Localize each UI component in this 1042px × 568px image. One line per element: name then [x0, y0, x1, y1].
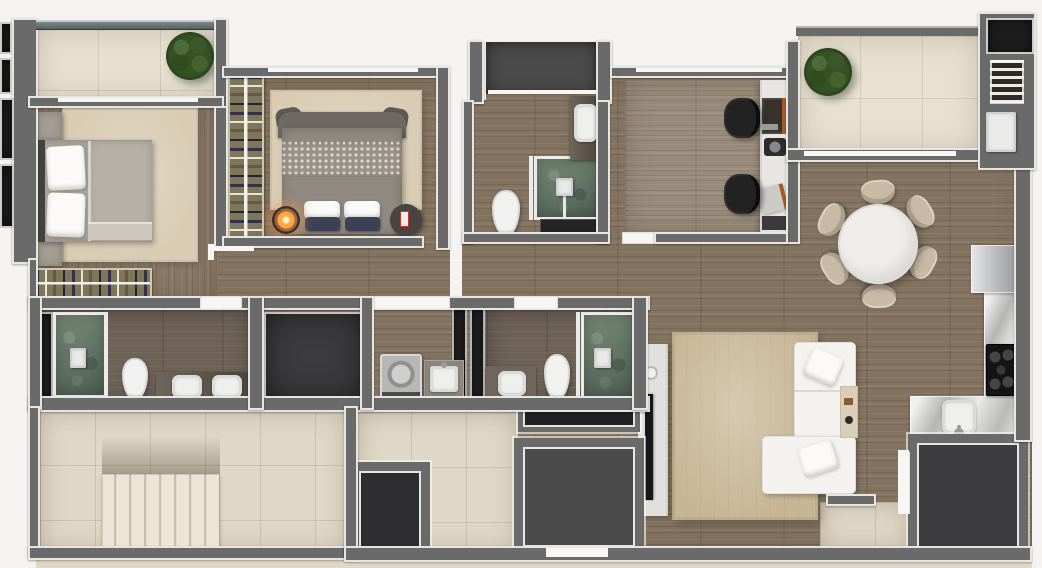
elevator-sill: [546, 548, 608, 557]
office-keyboard: [762, 124, 778, 130]
duct-shaft-b: [470, 306, 485, 402]
office-chair-2: [724, 174, 760, 214]
cooktop: [986, 344, 1016, 396]
master-headboard: [38, 140, 45, 242]
dining-chair: [862, 283, 897, 308]
window-trim-office: [636, 68, 782, 72]
bath1-shower-glass: [529, 156, 533, 220]
exterior-top-2: [598, 0, 798, 66]
exterior-top-3: [796, 0, 996, 26]
slider-trim-balc2: [804, 151, 956, 156]
wall-bed2-right: [436, 66, 450, 250]
railing-balcony-2: [796, 26, 978, 36]
plant-balcony-master: [166, 32, 214, 80]
wall-mid-bottom: [28, 396, 650, 412]
left-panel-2: [0, 58, 12, 94]
shaft-void-top: [486, 42, 598, 94]
plant-balcony-2: [804, 48, 852, 96]
left-panel-1: [0, 22, 12, 54]
office-chair-1: [724, 98, 760, 138]
stairs-shadow: [102, 436, 220, 476]
floor-plan-canvas: [0, 0, 1042, 568]
bath1-shower-head: [556, 178, 573, 196]
mbath-basin-2: [212, 375, 242, 398]
bath1-basin: [574, 104, 597, 142]
bath2-basin: [498, 371, 526, 396]
wall-mbath-left: [28, 296, 42, 410]
office-equipment: [764, 138, 786, 156]
nightstand-top: [38, 112, 62, 140]
floor-storage-room: [264, 312, 364, 400]
master-pillow-1: [46, 145, 86, 191]
door-jamb-bed1: [208, 244, 214, 260]
door-master-bath: [200, 296, 242, 310]
wall-kitchen-back: [1014, 158, 1032, 442]
fridge: [971, 245, 1018, 293]
master-pillow-2: [46, 192, 86, 237]
wall-stairs-left: [28, 406, 40, 558]
side-table-item-1: [844, 398, 853, 405]
wall-divider-1: [248, 296, 264, 410]
laundry-tub: [430, 366, 458, 392]
dining-table: [838, 204, 918, 284]
room-frame-dark-br: [908, 434, 1028, 558]
wall-office-bottom: [654, 232, 788, 244]
service-appliance: [986, 112, 1016, 152]
wall-bath1-left: [462, 100, 474, 244]
staircase: [102, 474, 220, 550]
door-bath2: [514, 296, 558, 310]
door-laundry: [374, 296, 450, 310]
left-panel-3: [0, 98, 14, 160]
wall-left-pillar: [12, 18, 38, 264]
window-trim-master: [58, 98, 198, 102]
window-trim-shaft: [488, 90, 596, 94]
wardrobe-bed2: [228, 76, 264, 238]
wall-bath2-right: [632, 296, 648, 410]
door-entry: [898, 450, 909, 514]
wall-office-right: [786, 40, 800, 244]
wall-bath1-bottom: [462, 232, 610, 244]
exterior-slot: [450, 100, 462, 306]
room-frame-small-dark: [350, 462, 430, 558]
nightstand-bottom: [38, 238, 62, 266]
mbath-basin-1: [172, 375, 202, 398]
lamp-bed2: [272, 206, 300, 234]
side-table-item-2: [845, 416, 853, 424]
wall-bed1-right: [214, 106, 228, 250]
bath2-shower-glass: [576, 312, 580, 400]
left-panel-4: [0, 164, 14, 228]
door-office: [622, 232, 654, 244]
wall-bath1-right: [596, 100, 610, 244]
floor-entry: [820, 502, 910, 550]
exterior-top-1: [224, 0, 460, 68]
washing-machine: [380, 354, 422, 400]
service-black-panel: [986, 18, 1034, 54]
wall-balc1-right: [214, 18, 228, 108]
office-pad: [762, 216, 786, 230]
mbath-shower-head: [70, 348, 86, 368]
wall-stairs-right: [344, 406, 358, 558]
bed2-pattern-band: [282, 141, 402, 177]
door-leaf-bed1: [210, 246, 254, 251]
railing-balcony-master: [36, 20, 218, 30]
window-trim-bed2: [268, 68, 418, 72]
mbath-shower-glass: [104, 312, 108, 398]
bath2-shower-head: [594, 348, 611, 368]
wall-entry-stub: [826, 494, 876, 506]
laundry-faucet: [441, 362, 447, 368]
sofa-side-table: [840, 386, 858, 438]
wall-stairs-bottom: [28, 546, 358, 560]
bath1-shower-stem: [563, 196, 566, 218]
dining-chair: [860, 179, 896, 205]
wall-divider-2: [360, 296, 374, 410]
wall-shaft-pillar-left: [468, 40, 484, 104]
elevator-room: [514, 438, 644, 556]
master-throw: [88, 222, 152, 240]
wall-bottom-main: [344, 546, 1032, 562]
vent-grille: [990, 60, 1024, 104]
bed2-pillow-navy-1: [305, 217, 340, 231]
side-table-book: [400, 211, 409, 227]
bed2-pillow-navy-2: [345, 217, 380, 231]
